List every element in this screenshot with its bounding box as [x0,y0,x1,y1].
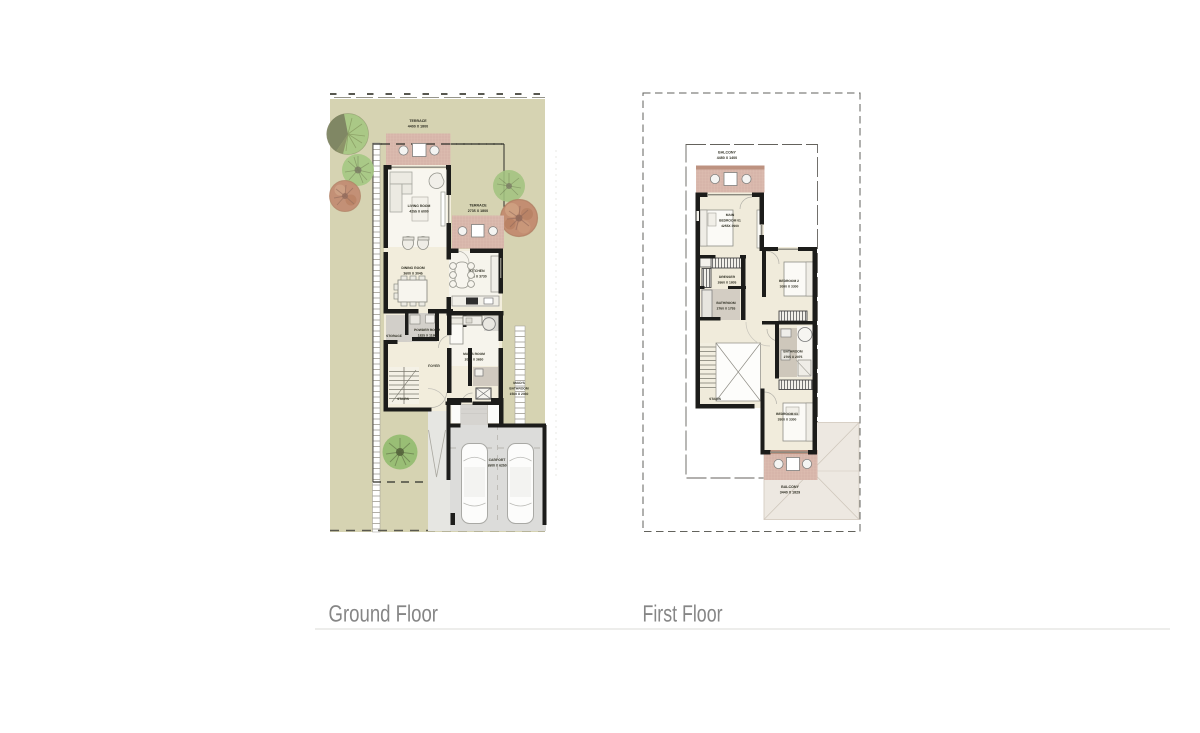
svg-text:3440 X 1829: 3440 X 1829 [780,491,800,495]
svg-text:STAIRS: STAIRS [397,397,410,401]
svg-text:FOYER: FOYER [428,364,440,368]
svg-text:4400 X 1800: 4400 X 1800 [408,125,428,129]
svg-text:2660 X 1805: 2660 X 1805 [718,281,737,285]
svg-text:STORAGE: STORAGE [386,334,402,338]
svg-text:DINING ROOM: DINING ROOM [401,266,425,270]
svg-text:BATHROOM: BATHROOM [509,387,528,391]
svg-text:5500 X 6250: 5500 X 6250 [487,464,506,468]
svg-text:LIVING ROOM: LIVING ROOM [408,204,431,208]
svg-text:3500 X 3300: 3500 X 3300 [778,418,797,422]
svg-text:BEDROOM 01: BEDROOM 01 [719,219,741,223]
svg-text:STAIRS: STAIRS [709,397,722,401]
svg-text:BALCONY: BALCONY [718,151,736,155]
svg-text:DRESSER: DRESSER [719,275,736,279]
svg-text:BATHROOM: BATHROOM [783,350,802,354]
svg-text:3600 X 3045: 3600 X 3045 [403,272,422,276]
svg-text:MAIDS ROOM: MAIDS ROOM [463,352,485,356]
svg-text:2705 X 2075: 2705 X 2075 [784,355,803,359]
svg-text:1500 X 2030: 1500 X 2030 [510,392,529,396]
svg-text:MAID'S: MAID'S [513,381,525,385]
svg-text:BATHROOM: BATHROOM [716,301,735,305]
svg-text:MAIN: MAIN [726,213,735,217]
svg-text:BEDROOM 03: BEDROOM 03 [776,412,798,416]
svg-text:4480 X 1400: 4480 X 1400 [717,156,737,160]
svg-text:TERRACE: TERRACE [409,119,427,123]
svg-text:1825 X 1180: 1825 X 1180 [418,334,437,338]
svg-text:2080 X 3650: 2080 X 3650 [465,358,484,362]
svg-text:Ground Floor: Ground Floor [329,601,439,627]
svg-text:TERRACE: TERRACE [469,204,487,208]
svg-text:4255 X 6000: 4255 X 6000 [409,210,428,214]
svg-text:BEDROOM 2: BEDROOM 2 [779,279,799,283]
svg-text:3080 X 3300: 3080 X 3300 [780,285,799,289]
svg-text:BALCONY: BALCONY [781,485,799,489]
svg-text:2735 X 1800: 2735 X 1800 [468,209,488,213]
svg-text:First Floor: First Floor [643,601,723,627]
svg-text:4255X 3900: 4255X 3900 [721,224,739,228]
svg-text:2760 X 1755: 2760 X 1755 [717,307,736,311]
